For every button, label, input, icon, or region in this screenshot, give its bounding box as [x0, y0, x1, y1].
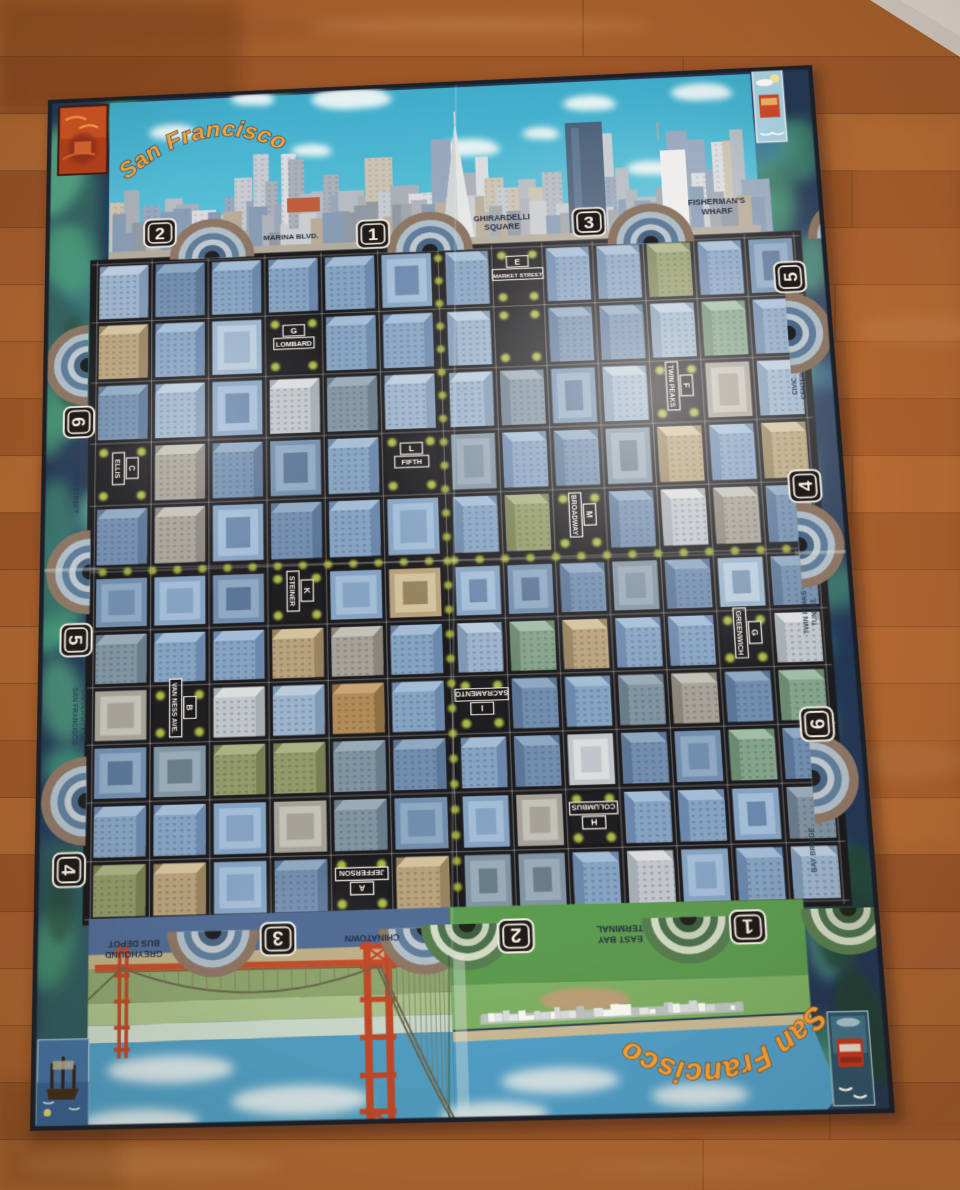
svg-text:GREYHOUND: GREYHOUND	[104, 948, 162, 960]
svg-text:STEINER: STEINER	[287, 576, 295, 607]
svg-text:UNIVERSITY OF: UNIVERSITY OF	[79, 689, 88, 742]
svg-text:H: H	[591, 817, 598, 828]
svg-text:5: 5	[780, 272, 802, 282]
svg-text:B: B	[184, 704, 194, 711]
svg-text:I: I	[481, 703, 484, 713]
svg-text:TERMINAL: TERMINAL	[596, 923, 644, 935]
svg-text:WHARF: WHARF	[701, 206, 733, 216]
svg-text:K: K	[302, 587, 312, 594]
svg-text:CHINATOWN: CHINATOWN	[345, 932, 400, 944]
svg-text:VAN NESS AVE.: VAN NESS AVE.	[170, 683, 177, 734]
svg-text:SQUARE: SQUARE	[484, 222, 520, 233]
svg-text:4: 4	[795, 480, 818, 492]
svg-text:1: 1	[368, 225, 379, 244]
svg-text:2: 2	[155, 224, 165, 243]
svg-text:JEFFERSON: JEFFERSON	[339, 867, 385, 876]
svg-text:UNION STREET: UNION STREET	[71, 464, 79, 513]
svg-text:BUS DEPOT: BUS DEPOT	[108, 938, 160, 950]
svg-text:4: 4	[57, 864, 79, 876]
svg-text:SACRAMENTO: SACRAMENTO	[455, 688, 508, 697]
svg-text:3: 3	[272, 927, 283, 950]
svg-text:6: 6	[68, 417, 89, 428]
svg-text:SAN FRANCISCO: SAN FRANCISCO	[70, 687, 79, 745]
svg-text:1: 1	[742, 915, 755, 938]
svg-text:5: 5	[64, 635, 86, 646]
svg-text:EAST BAY: EAST BAY	[598, 933, 644, 945]
svg-text:COLUMBUS: COLUMBUS	[571, 802, 616, 811]
svg-text:2: 2	[510, 924, 522, 947]
svg-text:3: 3	[583, 213, 594, 232]
svg-text:6: 6	[806, 718, 829, 729]
